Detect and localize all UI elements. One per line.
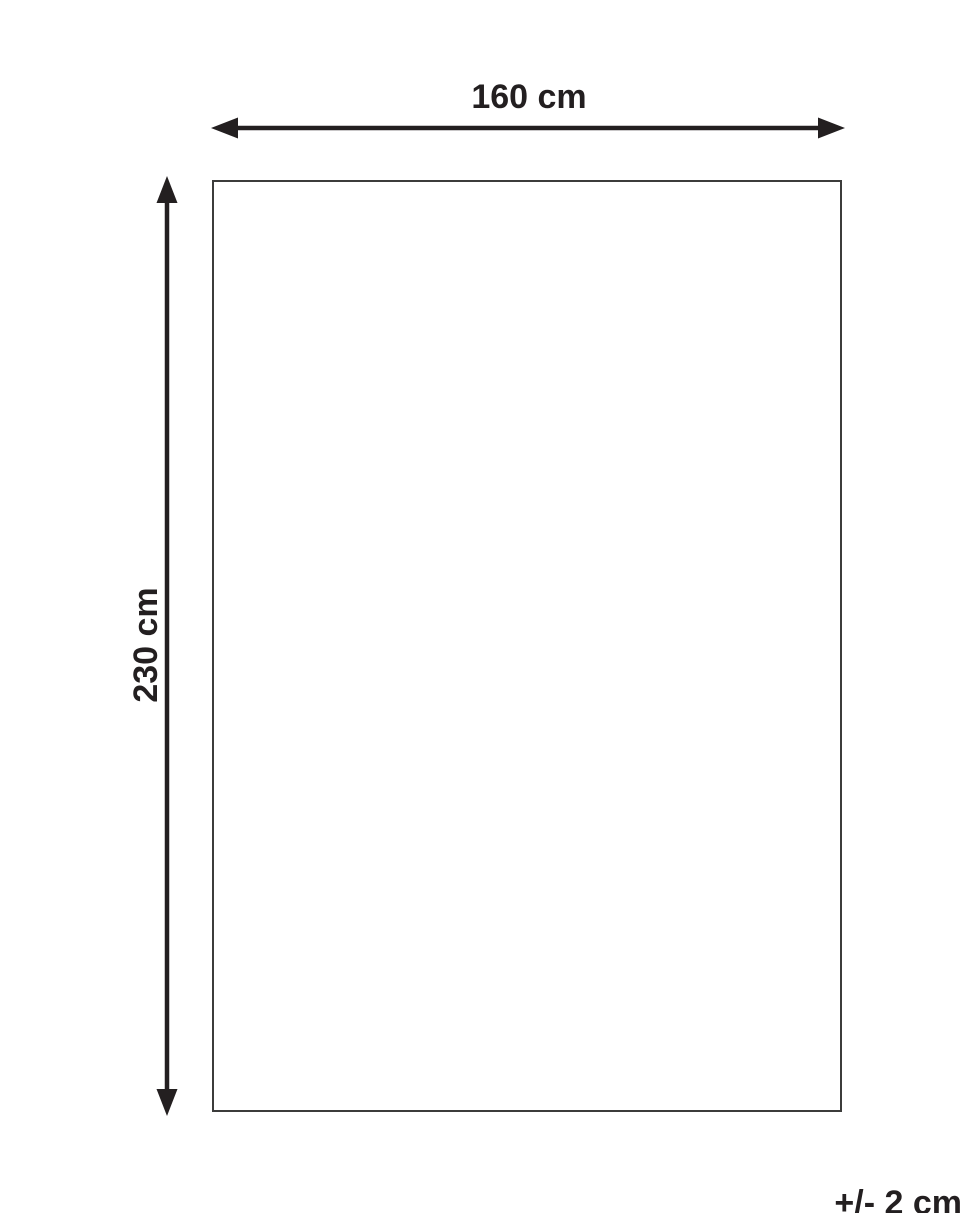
horizontal-double-arrow-icon (211, 114, 845, 142)
product-outline-rectangle (212, 180, 842, 1112)
dimension-diagram: 160 cm 230 cm +/- 2 cm (0, 0, 970, 1213)
tolerance-label: +/- 2 cm (834, 1186, 962, 1213)
vertical-double-arrow-icon (153, 176, 181, 1116)
width-dimension-label: 160 cm (471, 80, 586, 114)
